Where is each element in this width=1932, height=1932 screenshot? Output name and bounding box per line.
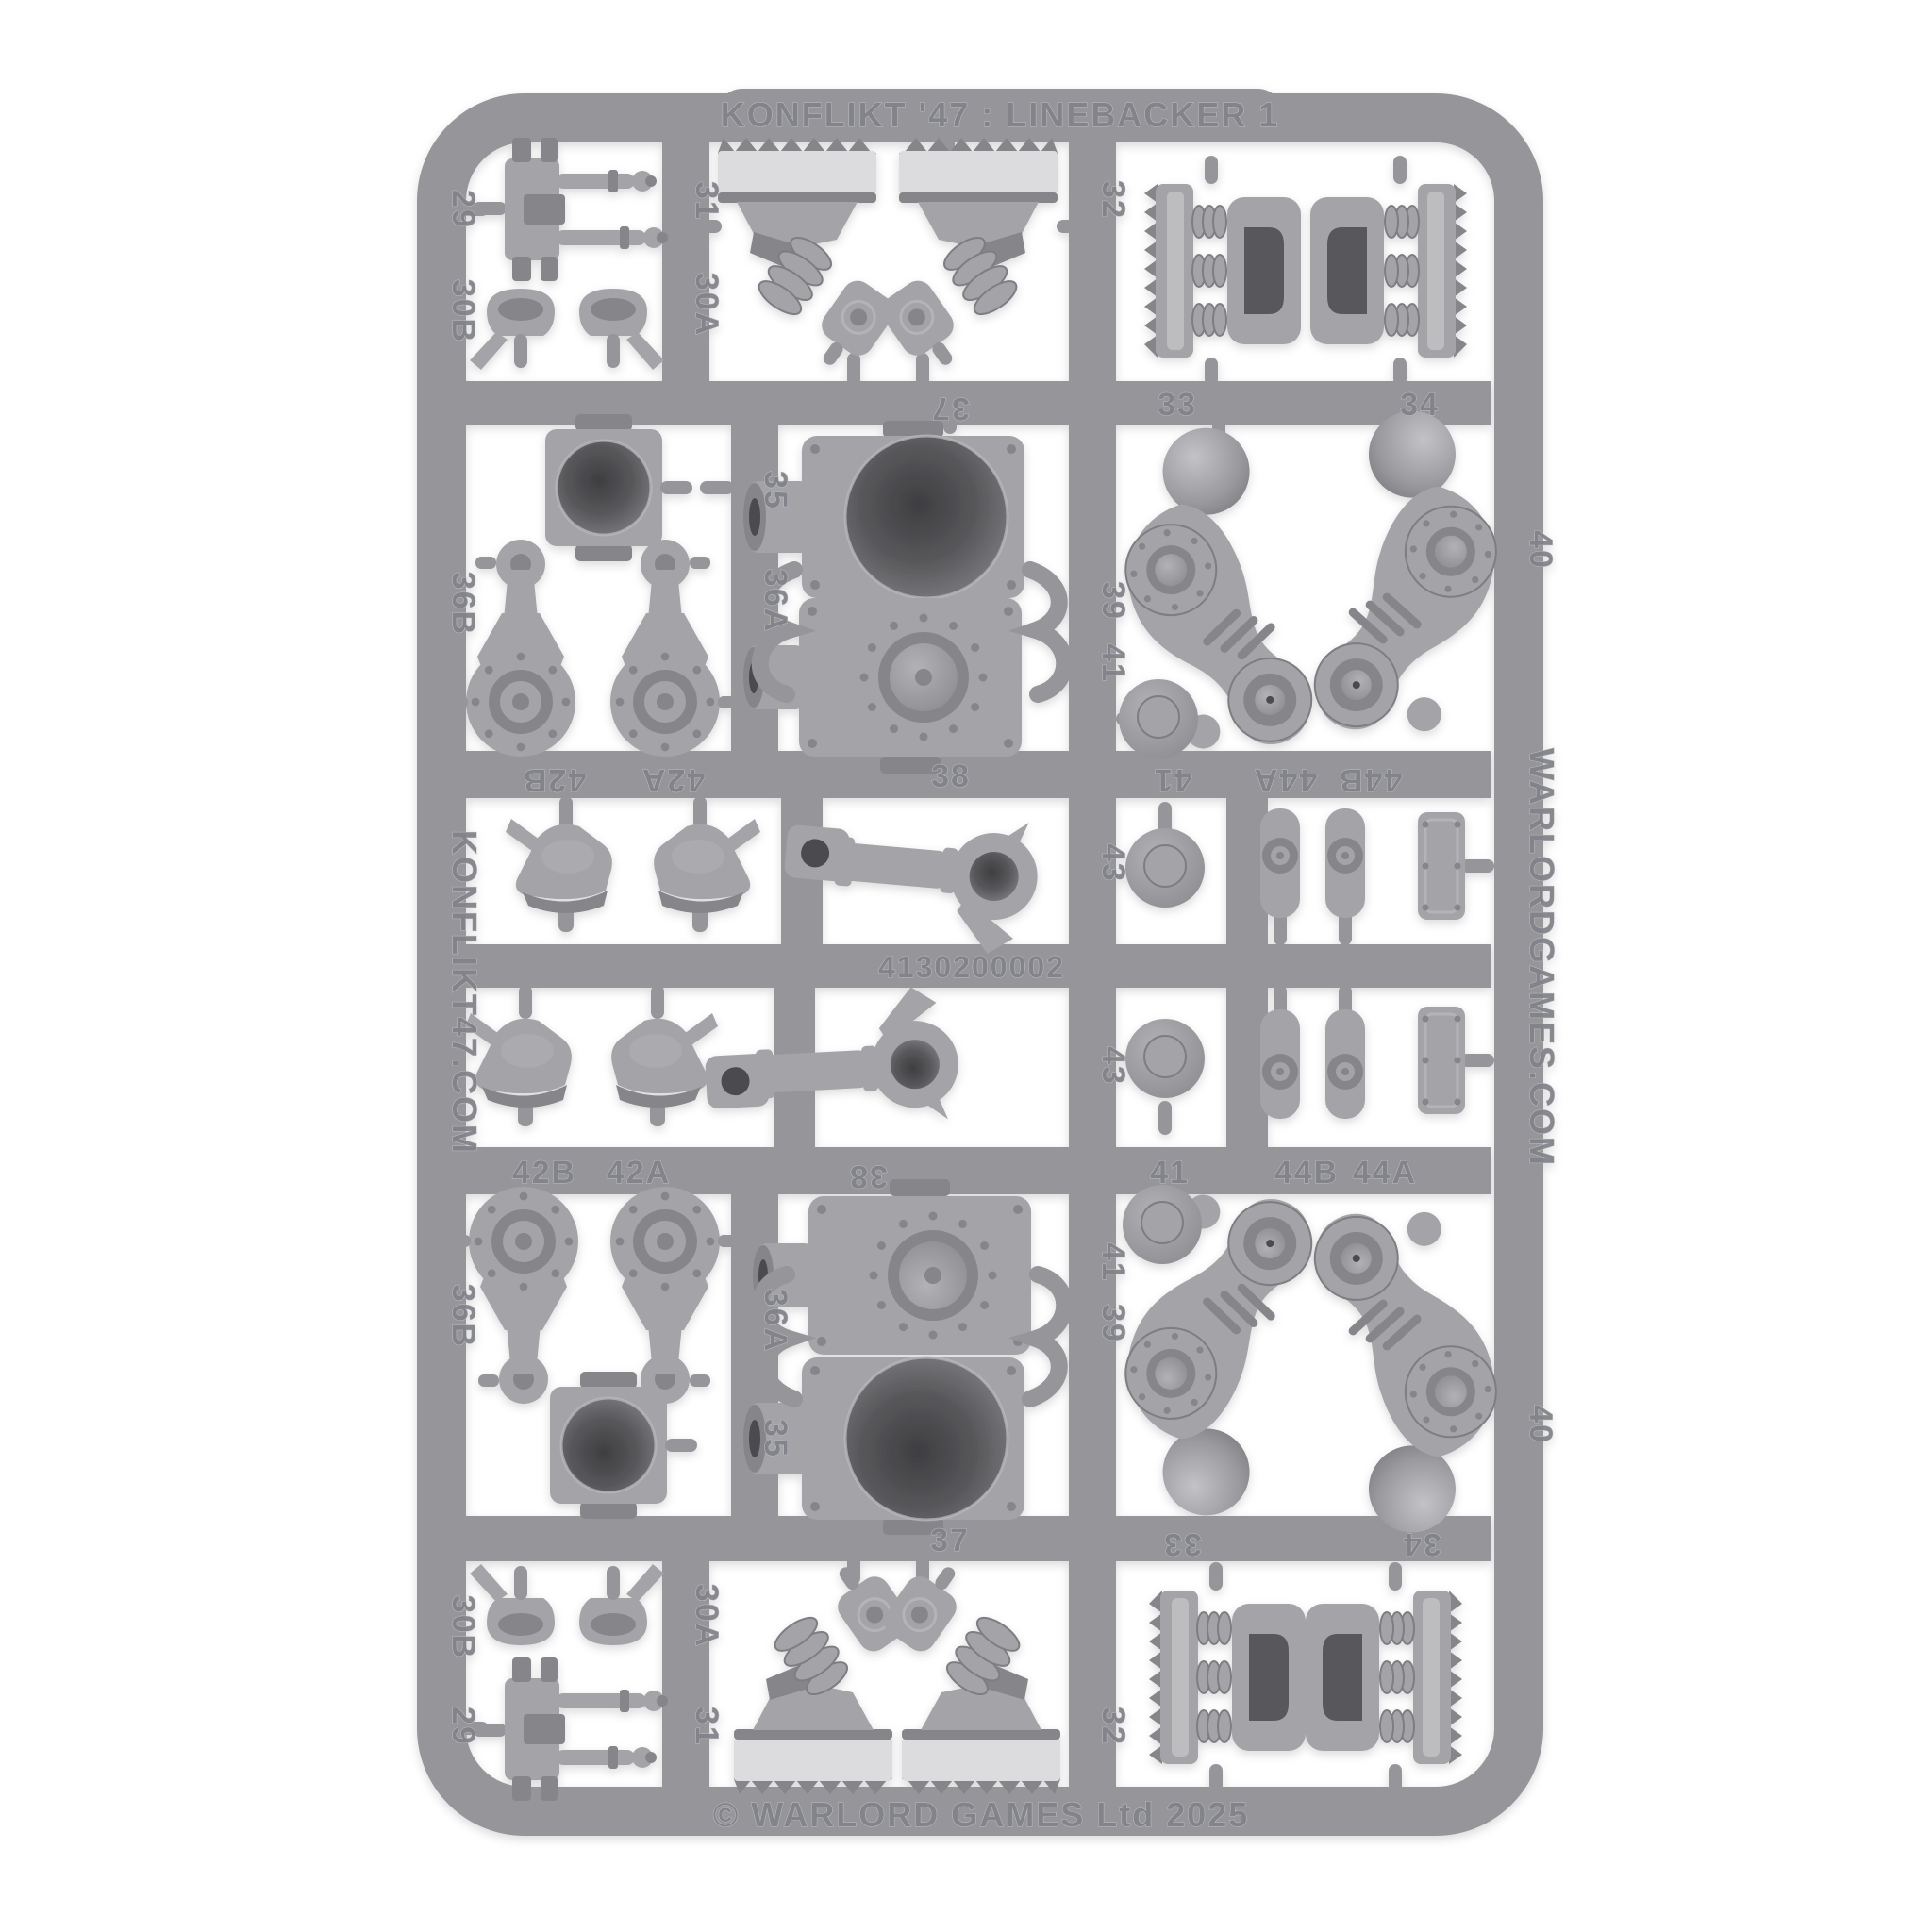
part-42a-helmet [654, 819, 760, 932]
label-33: 33 [1158, 387, 1197, 423]
label-36b: 36B [445, 1284, 481, 1348]
runner-v2-row4 [1069, 1189, 1116, 1524]
part-41-disc [1125, 1019, 1205, 1098]
gate [1460, 1054, 1494, 1067]
gate [688, 220, 722, 233]
gate [916, 353, 929, 387]
runner-v2-row5 [1069, 1557, 1116, 1792]
part-30a-hook-mirror [579, 1564, 664, 1645]
part-39-yoke-runner [1030, 570, 1064, 694]
label-29: 29 [445, 1707, 481, 1746]
label-41: 41 [1150, 1155, 1190, 1191]
part-43-piston-arm-mirror [702, 985, 961, 1132]
label-31: 31 [689, 181, 724, 221]
label-37-flipped: 37 [930, 391, 970, 426]
gate [847, 353, 860, 387]
label-40: 40 [1523, 530, 1558, 570]
sprue: KONFLIKT '47 : LINEBACKER 1 4130200002 ©… [441, 89, 1561, 1834]
part-41-disc [1119, 679, 1198, 758]
part-armour-plate [1418, 812, 1465, 920]
label-35: 35 [758, 471, 793, 510]
label-42b: 42B [512, 1155, 576, 1191]
part-33-track-pad [1144, 156, 1301, 386]
runner-v1-row1 [662, 132, 709, 391]
label-41: 41 [1095, 643, 1131, 683]
mould-code: 4130200002 [878, 950, 1065, 984]
label-36a: 36A [758, 1289, 793, 1353]
label-35: 35 [758, 1419, 793, 1458]
label-32: 32 [1095, 1707, 1131, 1746]
part-32-foot [875, 138, 1058, 380]
site-right-rail: WARLORDGAMES.COM [1523, 748, 1561, 1167]
sprue-title: KONFLIKT '47 : LINEBACKER 1 [721, 95, 1280, 134]
part-40-leg-right [1312, 406, 1506, 739]
label-30a: 30A [689, 273, 724, 337]
label-44a-flipped: 44A [1253, 762, 1317, 798]
label-43: 43 [1095, 1046, 1131, 1086]
label-42a-flipped: 42A [641, 762, 705, 798]
label-36b: 36B [445, 572, 481, 636]
gate [519, 985, 532, 1019]
label-41-flipped: 41 [1153, 762, 1192, 798]
label-42b-flipped: 42B [522, 762, 586, 798]
part-32-foot-mirror [878, 1552, 1060, 1794]
gate [1460, 859, 1494, 873]
label-34: 34 [1400, 387, 1440, 423]
label-30a: 30A [689, 1584, 724, 1648]
label-31: 31 [689, 1707, 724, 1746]
part-34-track-pad-mirror [1306, 1562, 1462, 1792]
label-38-flipped: 38 [848, 1158, 888, 1194]
copyright: © WARLORD GAMES Ltd 2025 [713, 1795, 1250, 1834]
part-42b-helmet [506, 819, 612, 932]
gate [700, 481, 734, 494]
part-38-ringed-joint-mirror [753, 1179, 1031, 1355]
sprue-photo: KONFLIKT '47 : LINEBACKER 1 4130200002 ©… [0, 0, 1932, 1932]
part-36a-crank [610, 540, 741, 757]
part-44b-knob-mirror [1260, 1009, 1300, 1119]
label-39: 39 [1095, 581, 1131, 621]
label-36a: 36A [758, 569, 793, 633]
label-34-flipped: 34 [1402, 1526, 1441, 1562]
part-40-leg-right-mirror [1312, 1205, 1506, 1538]
part-44a-knob-mirror [1325, 1009, 1365, 1119]
label-30b: 30B [445, 279, 481, 343]
label-30b: 30B [445, 1595, 481, 1659]
part-39-yoke-runner-mirror [1030, 1274, 1064, 1399]
part-29-pin-bracket [473, 138, 668, 281]
part-36a-crank-mirror [610, 1187, 741, 1404]
label-33-flipped: 33 [1162, 1526, 1202, 1562]
gate [1057, 220, 1091, 233]
label-40: 40 [1523, 1405, 1558, 1444]
label-29: 29 [445, 190, 481, 229]
part-31-foot [718, 138, 900, 380]
label-39: 39 [1095, 1304, 1131, 1343]
part-44a-knob [1325, 808, 1365, 918]
label-37: 37 [930, 1523, 970, 1558]
runner-v2-row1 [1069, 132, 1116, 391]
label-44b: 44B [1274, 1155, 1339, 1191]
part-30a-hook [579, 289, 664, 370]
part-30b-hook [470, 289, 555, 370]
part-44b-knob [1260, 808, 1300, 918]
part-29-pin-bracket-mirror [473, 1657, 668, 1801]
gate [1158, 1101, 1172, 1135]
label-42a: 42A [607, 1155, 671, 1191]
part-34-track-pad [1310, 156, 1467, 386]
part-30b-hook-mirror [470, 1564, 555, 1645]
label-44a: 44A [1353, 1155, 1417, 1191]
part-41-disc [1125, 828, 1205, 908]
part-armour-plate-mirror [1418, 1007, 1465, 1114]
part-33-track-pad-mirror [1149, 1562, 1306, 1792]
part-42a-helmet-mirror [611, 1013, 718, 1126]
label-32: 32 [1095, 180, 1131, 220]
label-41: 41 [1095, 1242, 1131, 1282]
gate [651, 985, 664, 1019]
site-left-rail: KONFLIKT47.COM [445, 830, 484, 1155]
part-41-disc [1123, 1185, 1202, 1264]
label-44b-flipped: 44B [1338, 762, 1402, 798]
label-43: 43 [1095, 843, 1131, 883]
gate [597, 1519, 610, 1553]
part-31-foot-mirror [734, 1552, 916, 1794]
part-35-dome-block [545, 414, 692, 561]
label-38: 38 [931, 758, 971, 794]
